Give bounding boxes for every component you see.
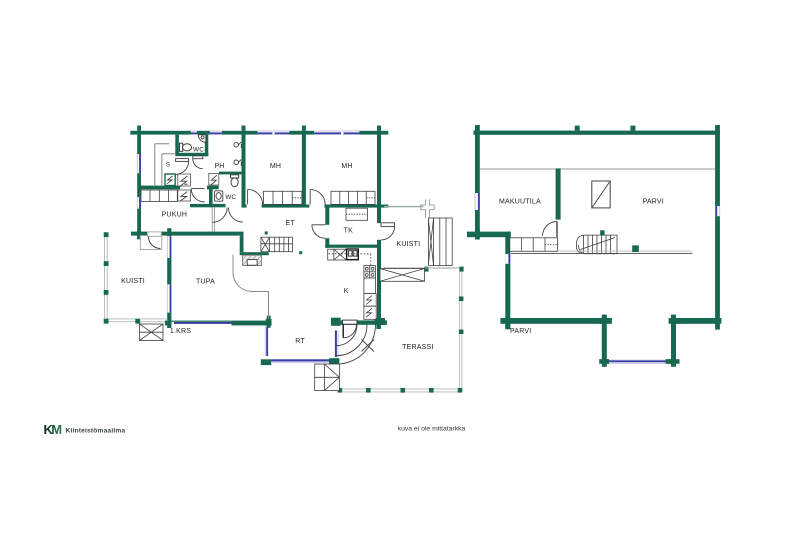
svg-text:MH: MH [341,163,352,170]
svg-text:PARVI: PARVI [510,328,531,335]
svg-text:RT: RT [295,338,305,345]
svg-text:TUPA: TUPA [196,279,215,286]
svg-text:PUKUH: PUKUH [162,212,188,219]
svg-text:ET: ET [286,220,296,227]
svg-text:1.KRS: 1.KRS [170,328,191,335]
svg-text:K: K [344,288,349,295]
svg-text:KUISTI: KUISTI [397,241,421,248]
svg-text:PH: PH [214,163,224,170]
svg-text:KM: KM [44,422,62,437]
svg-text:MH: MH [270,163,281,170]
svg-text:Kiinteistömaailma: Kiinteistömaailma [66,427,126,434]
svg-text:KUISTI: KUISTI [121,278,145,285]
svg-text:MAKUUTILA: MAKUUTILA [499,198,541,205]
svg-text:kuva ei ole mittatarkka: kuva ei ole mittatarkka [398,425,466,432]
svg-text:S: S [166,162,170,169]
svg-text:WC: WC [193,146,204,153]
svg-text:TERASSI: TERASSI [402,344,433,351]
svg-text:PARVI: PARVI [643,198,664,205]
svg-text:WC: WC [225,194,236,201]
svg-text:TK: TK [344,228,353,235]
